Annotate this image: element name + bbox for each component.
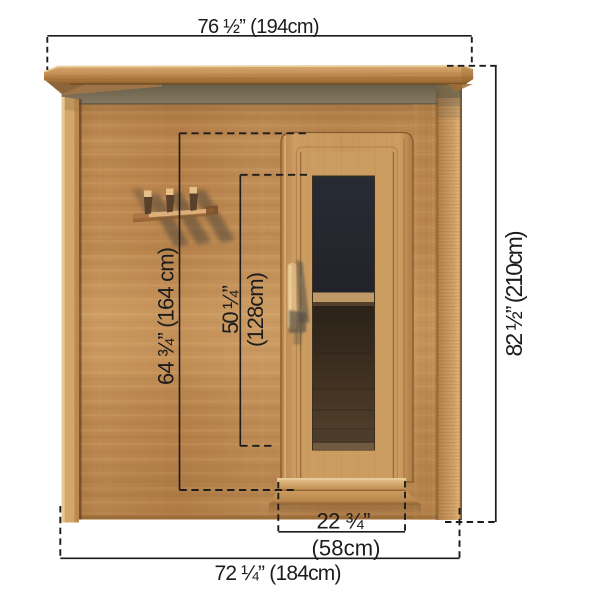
svg-text:(58cm): (58cm) <box>312 536 381 561</box>
svg-text:72 ¼” (184cm): 72 ¼” (184cm) <box>215 562 342 585</box>
svg-text:64 ¾” (164 cm): 64 ¾” (164 cm) <box>154 247 179 385</box>
svg-text:76 ½” (194cm): 76 ½” (194cm) <box>198 16 320 38</box>
svg-text:22 ¾”: 22 ¾” <box>317 509 371 534</box>
svg-text:82 ½” (210cm): 82 ½” (210cm) <box>501 231 527 357</box>
